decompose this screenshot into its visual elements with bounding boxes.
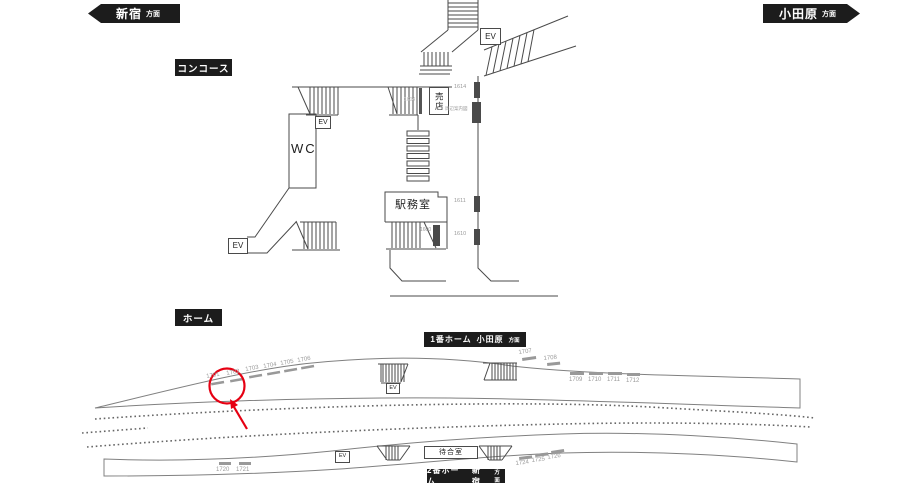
ad-label-1712: 1712 <box>626 378 639 384</box>
marker-1711 <box>608 372 622 375</box>
platform1-suffix: 方面 <box>509 336 520 344</box>
wc-room-label: WC <box>291 142 317 155</box>
stair-lower-left <box>292 221 340 250</box>
office-label: 駅務室 <box>395 200 431 211</box>
ev-box-platform2: EV <box>335 451 350 463</box>
ad-label-area-map: 周辺案内図 <box>445 107 468 112</box>
ad-label-1711: 1711 <box>607 377 620 383</box>
marker-1611 <box>474 196 480 212</box>
ad-label-1610: 1610 <box>454 232 466 238</box>
direction-suffix: 方面 <box>822 9 836 19</box>
marker-1710 <box>589 372 603 375</box>
ad-label-1604: 1604 <box>404 98 415 103</box>
marker-1709 <box>570 372 584 375</box>
direction-suffix: 方面 <box>146 9 160 19</box>
stair-diagonal <box>484 16 576 76</box>
marker-1600 <box>433 225 440 246</box>
section-label-concourse: コンコース <box>175 59 232 76</box>
platform1-label: 1番ホーム 小田原方面 <box>424 332 526 347</box>
marker-1614 <box>474 82 480 98</box>
direction-station: 小田原 <box>779 5 818 22</box>
marker-1707 <box>522 356 536 361</box>
ev-box-platform1: EV <box>386 383 400 394</box>
section-label-home: ホーム <box>175 309 222 326</box>
stair-left <box>298 87 338 115</box>
ev-corridor <box>247 188 296 253</box>
platform2-line: 2番ホーム <box>427 465 467 487</box>
waiting-room-box: 待合室 <box>424 446 478 459</box>
marker-1708 <box>547 362 560 366</box>
direction-badge-odawara: 小田原方面 <box>763 4 860 23</box>
track-line-1 <box>95 404 815 419</box>
station-map-svg <box>0 0 919 491</box>
ev-box-lower-left: EV <box>228 238 248 254</box>
platform2-label: 2番ホーム 新宿方面 <box>427 469 505 483</box>
platform2-suffix: 方面 <box>494 468 505 484</box>
direction-badge-shinjuku: 新宿方面 <box>88 4 180 23</box>
ad-label-1709: 1709 <box>569 377 582 383</box>
ad-label-1710: 1710 <box>588 377 601 383</box>
marker-1604 <box>419 88 422 114</box>
station-map: 新宿方面 小田原方面 コンコース ホーム 1番ホーム 小田原方面 2番ホーム 新… <box>0 0 919 491</box>
ev-box-top: EV <box>480 28 501 45</box>
marker-1720 <box>219 462 231 465</box>
marker-area-map <box>472 102 481 123</box>
track-line-stub <box>82 428 148 433</box>
ad-label-1611: 1611 <box>454 199 466 205</box>
ad-label-1600: 1600 <box>420 228 431 233</box>
platform1-line: 1番ホーム <box>430 334 471 345</box>
ad-label-1614: 1614 <box>454 85 466 91</box>
marker-1610 <box>474 229 480 245</box>
platform2-direction: 新宿 <box>472 465 489 487</box>
ad-label-1720: 1720 <box>216 467 229 473</box>
platform1-shape <box>95 358 800 408</box>
ad-label-1721: 1721 <box>236 467 249 473</box>
steps-column <box>407 131 429 181</box>
marker-1712 <box>627 373 640 376</box>
direction-station: 新宿 <box>116 5 142 22</box>
ev-box-concourse: EV <box>315 116 331 129</box>
stair-landing <box>419 30 478 74</box>
marker-1721 <box>239 462 251 465</box>
platform1-direction: 小田原 <box>477 334 504 345</box>
stair-top-shaft <box>448 0 478 30</box>
